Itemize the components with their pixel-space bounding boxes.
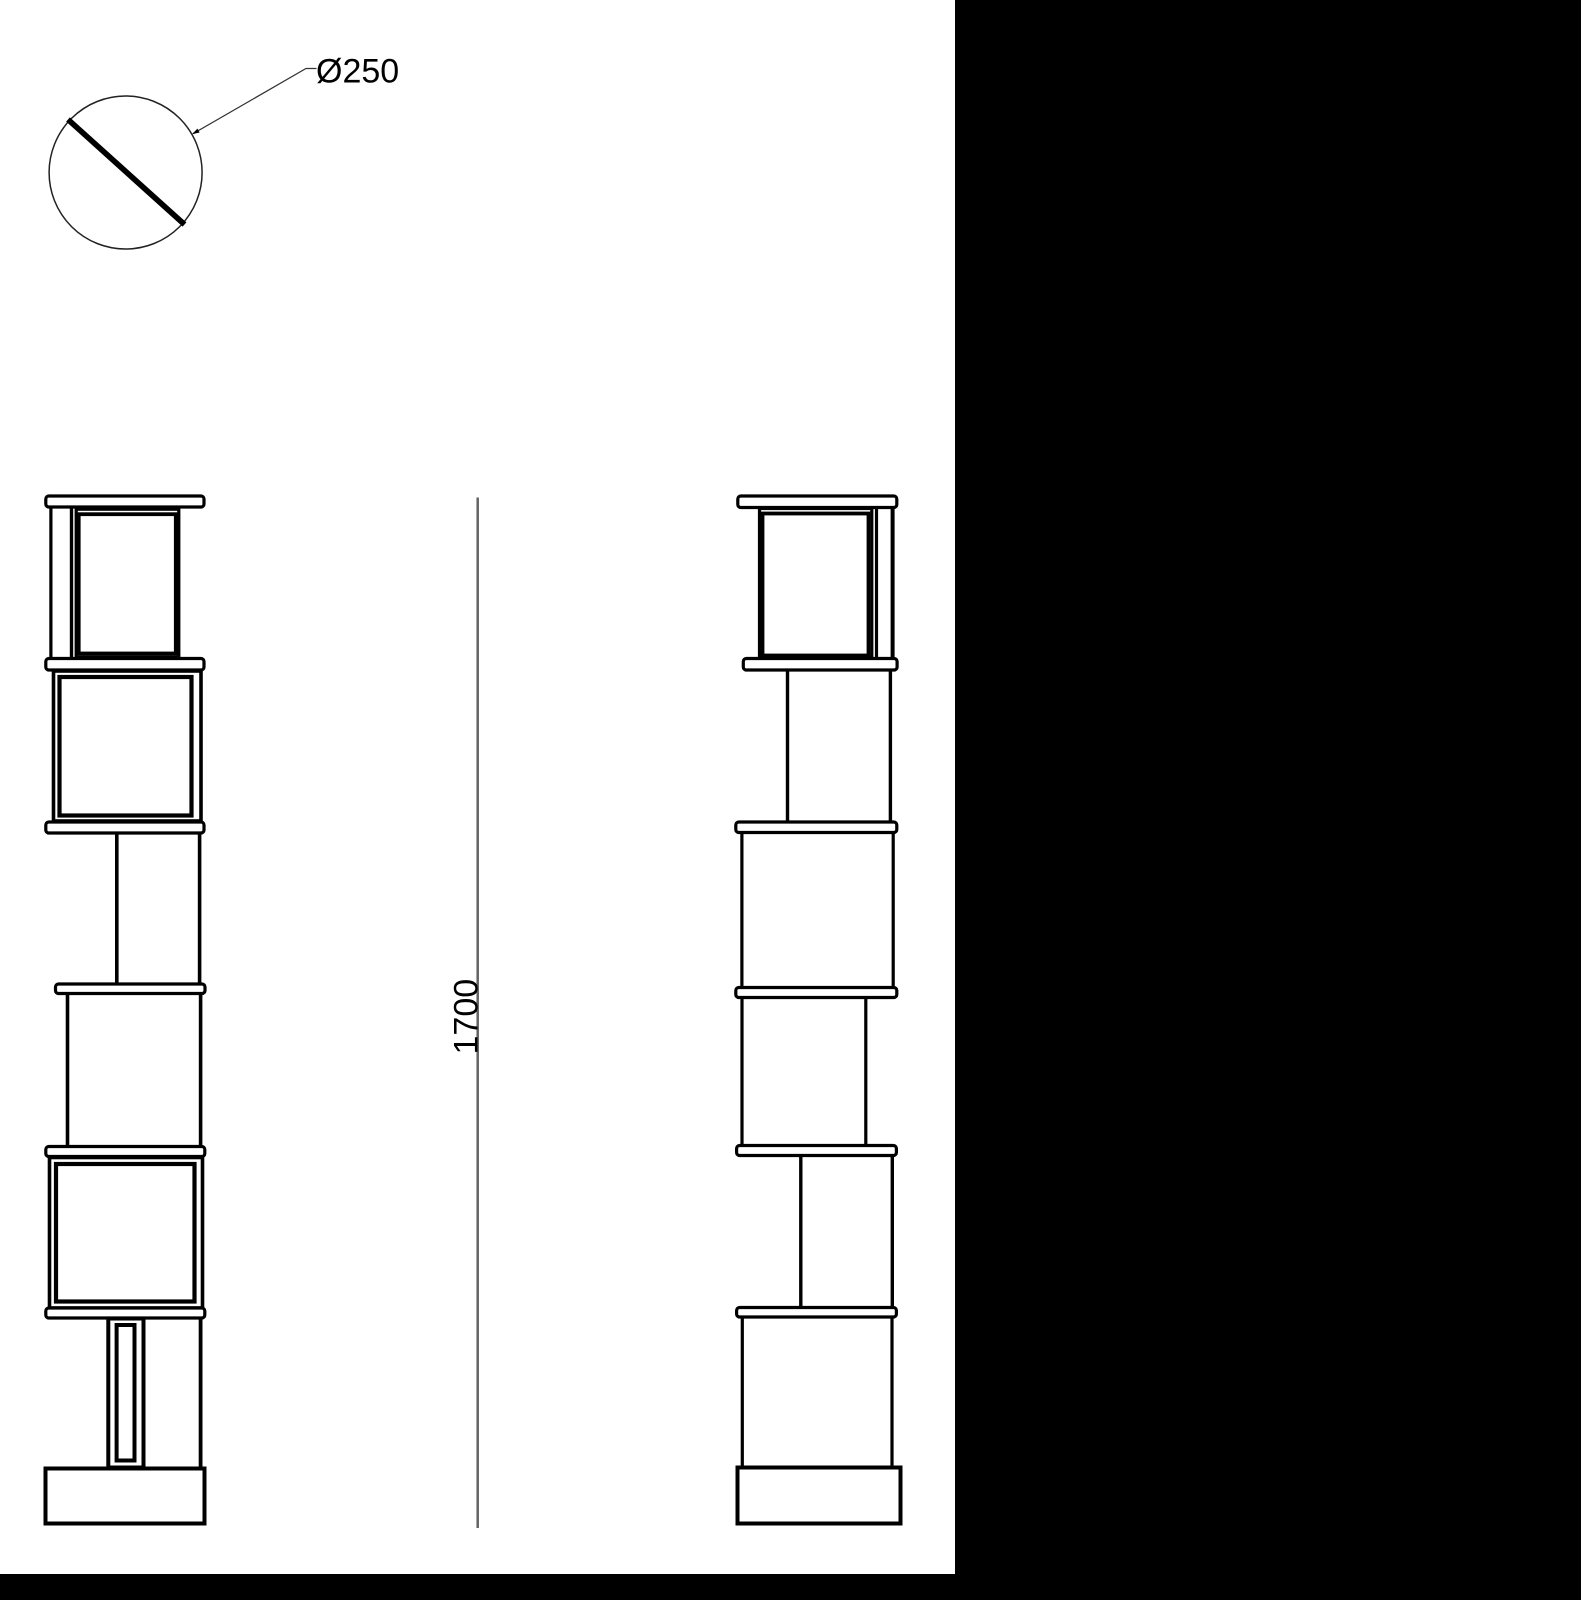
svg-text:1700: 1700	[448, 979, 486, 1055]
svg-text:Ø250: Ø250	[316, 53, 399, 91]
